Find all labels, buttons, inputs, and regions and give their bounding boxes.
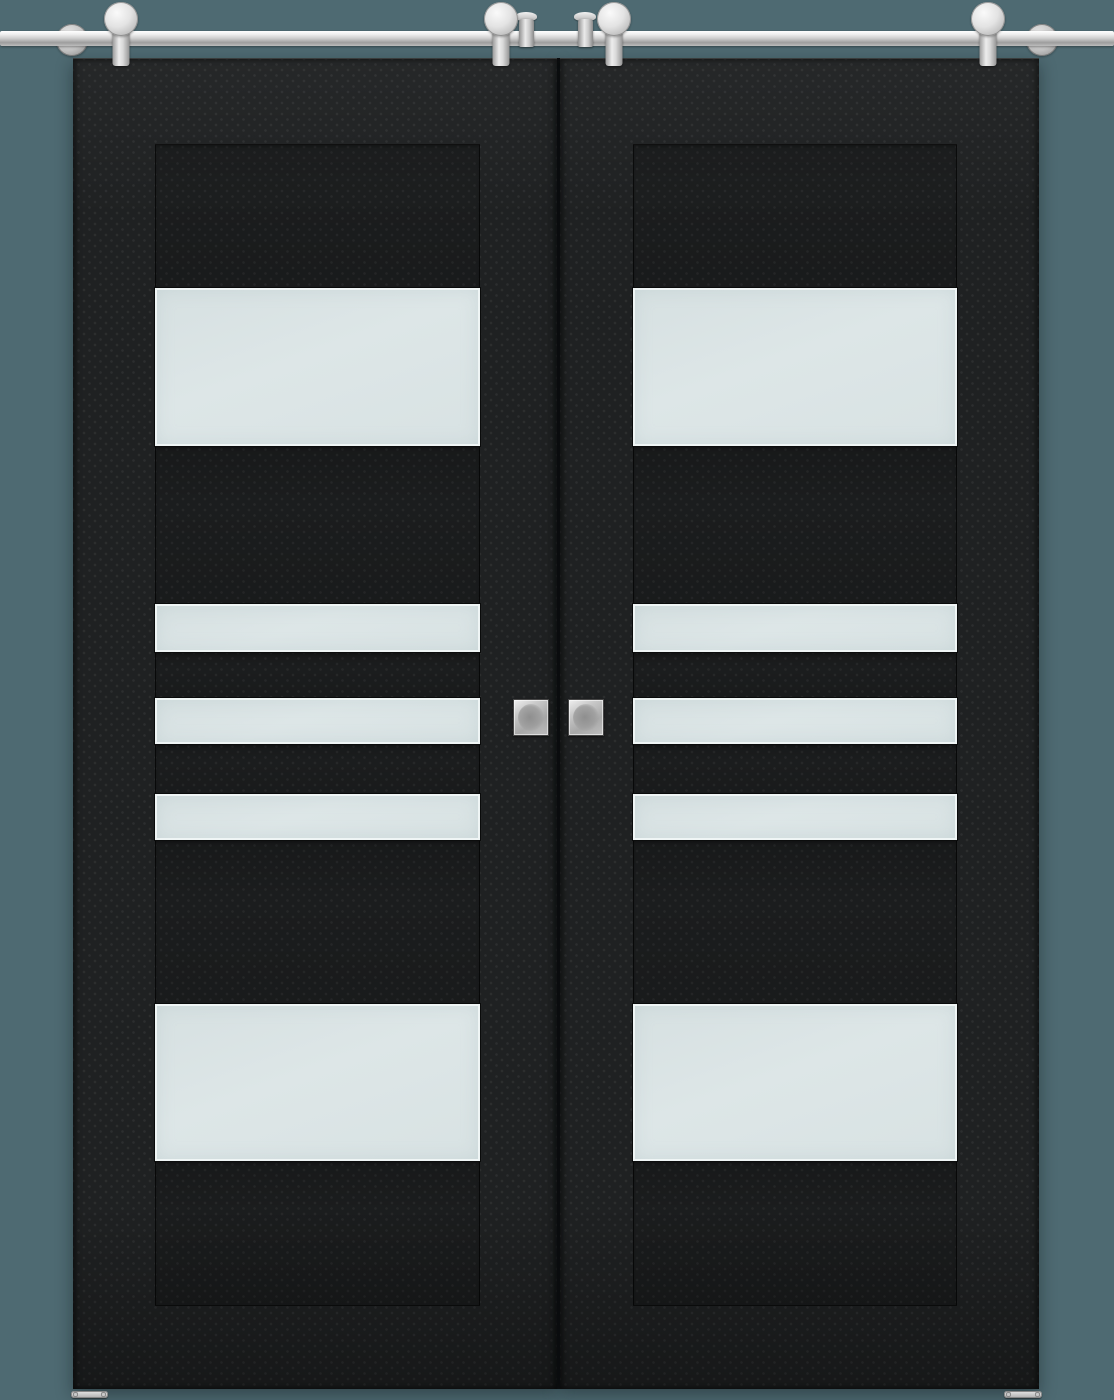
roller-wheel [484, 2, 518, 36]
wood-panel [155, 144, 480, 288]
roller-hanger-3 [597, 2, 631, 36]
frosted-glass-panel [155, 604, 480, 652]
right-door [560, 58, 1039, 1389]
roller-wheel [104, 2, 138, 36]
frosted-glass-panel [155, 288, 480, 446]
frosted-glass-panel [155, 698, 480, 744]
roller-wheel [597, 2, 631, 36]
wood-panel [633, 652, 957, 698]
frosted-glass-panel [155, 794, 480, 840]
wood-panel [155, 840, 480, 1004]
stopper-body [578, 19, 593, 47]
floor-guide-right [1004, 1391, 1042, 1398]
left-door-panel-grid [155, 144, 480, 1306]
frosted-glass-panel [633, 698, 957, 744]
floor-guide-left [71, 1391, 108, 1398]
rail-stopper-left [515, 12, 537, 47]
wood-panel [633, 144, 957, 288]
wood-panel [633, 744, 957, 794]
wood-panel [633, 1161, 957, 1306]
sliding-rail [0, 31, 1114, 46]
wood-panel [633, 840, 957, 1004]
roller-hanger-4 [971, 2, 1005, 36]
barn-door-product-photo [0, 0, 1114, 1400]
stopper-body [519, 19, 534, 47]
frosted-glass-panel [633, 288, 957, 446]
wood-panel [633, 446, 957, 604]
rail-stopper-right [574, 12, 596, 47]
frosted-glass-panel [633, 794, 957, 840]
wood-panel [155, 652, 480, 698]
left-door [73, 58, 557, 1389]
roller-hanger-2 [484, 2, 518, 36]
wood-panel [155, 744, 480, 794]
flush-pull-handle-right [568, 699, 604, 736]
frosted-glass-panel [633, 604, 957, 652]
wood-panel [155, 446, 480, 604]
flush-pull-handle-left [513, 699, 549, 736]
right-door-panel-grid [633, 144, 957, 1306]
wood-panel [155, 1161, 480, 1306]
frosted-glass-panel [633, 1004, 957, 1161]
roller-hanger-1 [104, 2, 138, 36]
frosted-glass-panel [155, 1004, 480, 1161]
roller-wheel [971, 2, 1005, 36]
